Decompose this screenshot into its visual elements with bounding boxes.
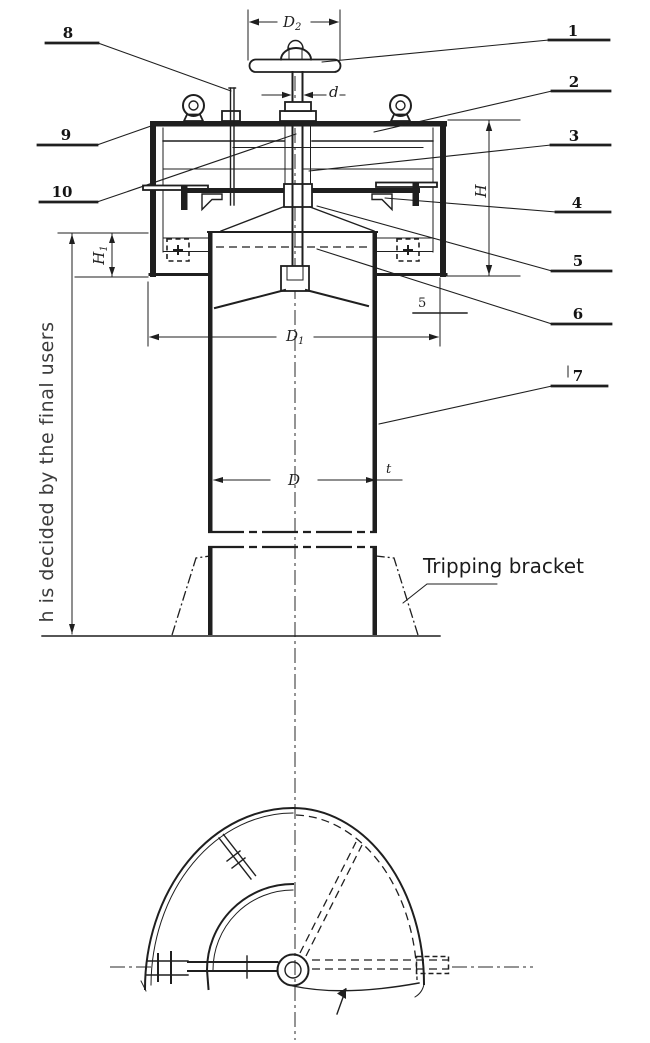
dimension-d2: D2 — [248, 10, 340, 60]
disc-plate-right — [376, 183, 437, 188]
tripping-bracket-callout: Tripping bracket — [403, 554, 584, 603]
dim-label-t: t — [386, 462, 392, 477]
callouts: 1 2 3 4 5 6 7 8 9 — [38, 22, 611, 424]
outer-shell-arc — [145, 808, 424, 989]
locking-rod — [229, 88, 236, 205]
coaming-wall-left — [208, 547, 213, 635]
handle-hidden-grip — [417, 957, 449, 974]
disc-bracket-right — [372, 194, 392, 210]
housing-wall-left — [150, 121, 156, 277]
inner-cowl-arc — [207, 884, 293, 970]
callout-10: 10 — [52, 183, 73, 201]
dim-label-D: D — [287, 471, 300, 489]
bolt-center-left — [174, 246, 182, 254]
outer-shell-hidden-arc — [296, 815, 417, 980]
callout-8: 8 — [63, 24, 73, 42]
plan-lower-edge — [293, 983, 419, 991]
arc-end-right — [415, 984, 424, 997]
dim-label-H: H — [472, 184, 490, 199]
knob-dome — [281, 48, 311, 60]
stem-collar — [284, 184, 312, 207]
arrow-left — [249, 19, 259, 26]
dim-label-H1: H1 — [90, 245, 110, 265]
callout-5: 5 — [573, 252, 583, 270]
housing-wall-right — [440, 121, 446, 277]
inner-cowl-end — [207, 970, 209, 989]
technical-drawing-page: D2 d — [0, 0, 650, 1043]
dimension-H: H — [443, 120, 520, 276]
handle-solid — [147, 952, 278, 983]
tripping-bracket-label: Tripping bracket — [422, 554, 584, 578]
disc-end-left — [181, 186, 188, 210]
tripping-bracket-leader — [403, 584, 497, 603]
arrow-right — [329, 19, 339, 26]
callout-2: 2 — [569, 73, 579, 91]
dim-label-d: d — [329, 83, 339, 101]
duct-wall-right — [373, 232, 378, 532]
ventilator-drawing: D2 d — [0, 0, 650, 1043]
dim-label-d2: D2 — [282, 13, 301, 33]
duct-wall-left — [208, 232, 213, 532]
disc-bracket-left — [202, 194, 222, 210]
radial-strut — [219, 835, 256, 880]
stem-boss — [281, 266, 309, 291]
stem-gland-nut — [285, 102, 311, 111]
hub-outer — [278, 955, 309, 986]
callout-7: 7 — [573, 367, 583, 385]
funnel-left — [215, 290, 285, 308]
callout-4: 4 — [572, 194, 582, 212]
tripping-bracket-left — [172, 556, 210, 635]
valve-disc-assembly — [143, 183, 437, 232]
eyebolt-right — [390, 95, 411, 121]
handwheel — [250, 41, 341, 73]
callout-6: 6 — [573, 305, 583, 323]
callout-1: 1 — [568, 22, 578, 40]
callout-9: 9 — [61, 126, 71, 144]
funnel-right — [306, 290, 368, 306]
handle-hidden — [312, 957, 449, 974]
cone-left — [221, 207, 283, 231]
hub-inner — [285, 962, 301, 978]
elevation-view: D2 d — [36, 10, 611, 636]
break-mark-flag — [337, 988, 346, 1014]
callout-3: 3 — [569, 127, 579, 145]
stem-gland-base — [280, 111, 316, 121]
inner-cowl-arc-inner — [213, 890, 293, 970]
coaming — [42, 547, 440, 636]
radial-strut-hidden — [300, 842, 362, 956]
disc-end-right — [413, 183, 420, 206]
dim-label-D1: D1 — [285, 327, 304, 347]
outer-shell-inner-line — [151, 813, 293, 985]
height-note: h is decided by the final users — [36, 321, 58, 622]
bolt-center-right — [404, 246, 412, 254]
stem-boss-funnel — [215, 266, 368, 308]
coaming-wall-right — [373, 547, 378, 635]
plate-thickness-label: 5 — [418, 296, 426, 311]
dimension-h: h is decided by the final users — [36, 234, 75, 634]
eyebolt-left — [183, 95, 204, 121]
